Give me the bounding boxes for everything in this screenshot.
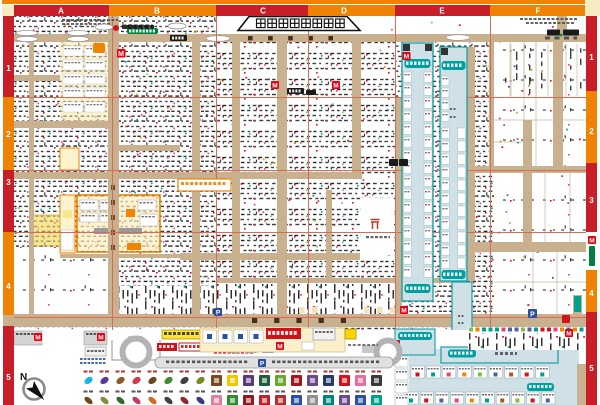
svg-text:1: 1 xyxy=(6,64,11,73)
svg-text:M: M xyxy=(404,54,409,61)
svg-text:M: M xyxy=(333,83,338,90)
svg-text:M: M xyxy=(272,83,277,90)
svg-text:4: 4 xyxy=(6,282,11,291)
svg-text:E: E xyxy=(439,6,445,15)
svg-text:A: A xyxy=(58,6,64,15)
svg-text:M: M xyxy=(566,331,571,338)
svg-text:M: M xyxy=(118,51,124,58)
svg-text:B: B xyxy=(154,6,160,15)
svg-text:M: M xyxy=(589,238,594,245)
svg-text:F: F xyxy=(536,6,541,15)
svg-text:C: C xyxy=(260,6,266,15)
svg-text:2: 2 xyxy=(6,130,11,139)
svg-text:2: 2 xyxy=(589,127,594,136)
svg-text:D: D xyxy=(341,6,347,15)
svg-text:5: 5 xyxy=(6,373,11,382)
svg-text:N: N xyxy=(20,372,27,383)
svg-text:5: 5 xyxy=(589,364,594,373)
svg-text:1: 1 xyxy=(589,53,594,62)
svg-text:4: 4 xyxy=(589,289,594,298)
svg-text:M: M xyxy=(277,344,282,351)
svg-text:P: P xyxy=(260,361,265,368)
svg-text:P: P xyxy=(530,312,535,319)
svg-text:M: M xyxy=(35,335,40,342)
svg-text:P: P xyxy=(216,310,221,317)
svg-text:M: M xyxy=(401,308,406,315)
svg-text:3: 3 xyxy=(6,178,11,187)
svg-text:3: 3 xyxy=(589,196,594,205)
svg-text:M: M xyxy=(98,335,103,342)
